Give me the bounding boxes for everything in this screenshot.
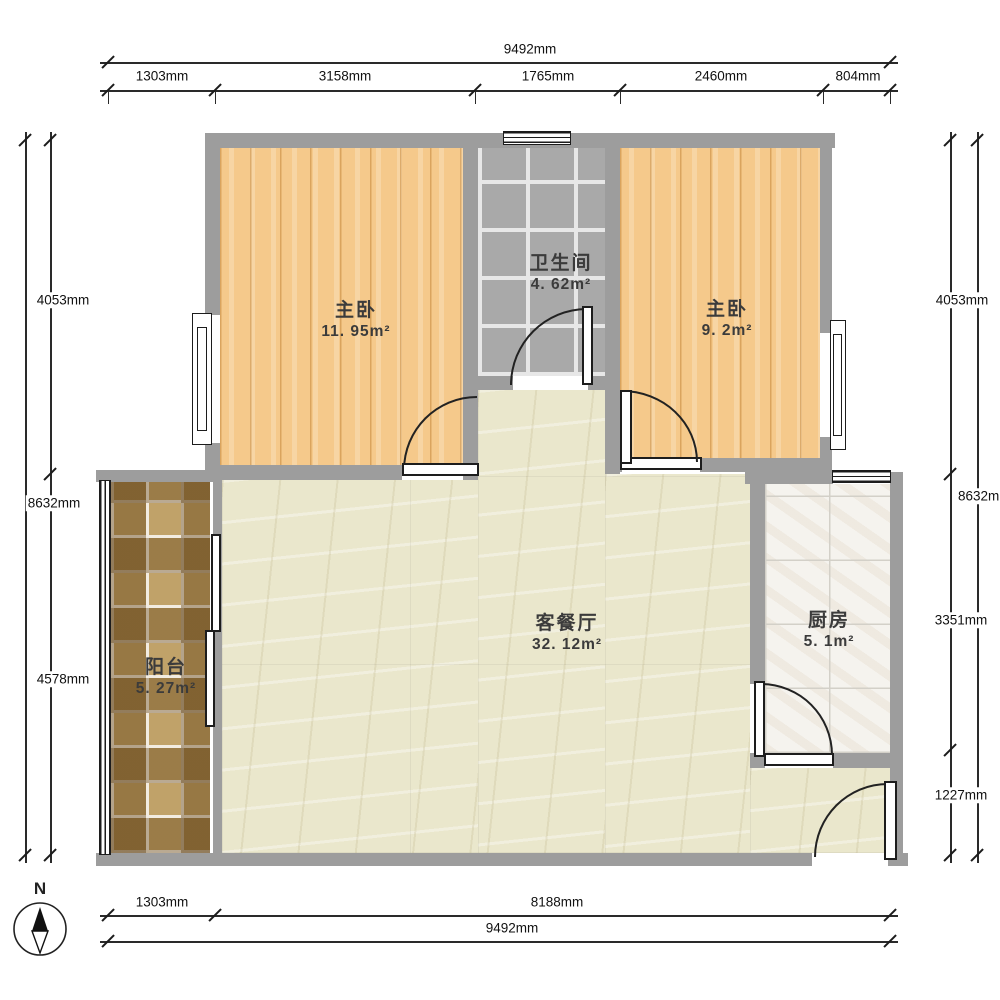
- balcony-window-icon: [99, 480, 111, 855]
- wall-bottom: [96, 853, 812, 866]
- bathroom-door-leaf: [582, 306, 593, 385]
- floor-plan: 9492mm 1303mm 3158mm 1765mm 2460mm 804mm…: [0, 0, 1000, 1000]
- room-name: 阳台: [136, 652, 196, 679]
- dim-label: 4053mm: [934, 292, 991, 308]
- room-name: 主卧: [702, 294, 753, 321]
- floor-living-right: [605, 474, 750, 853]
- dim-label-right-total: 8632mm: [956, 488, 1000, 504]
- dim-label: 3158mm: [317, 68, 374, 84]
- room-label-bathroom: 卫生间 4. 62m²: [529, 248, 592, 294]
- dim-label-bottom-total: 9492mm: [484, 920, 541, 936]
- dim-label: 4578mm: [35, 671, 92, 687]
- wall-bedroom-right-upper: [820, 148, 832, 333]
- compass-icon: [10, 899, 70, 959]
- dim-label: 1227mm: [933, 787, 990, 803]
- room-name: 主卧: [321, 295, 390, 322]
- dim-stub: [620, 91, 621, 104]
- bedroom-left-door-leaf: [402, 463, 479, 476]
- wall-kitchen-left: [750, 484, 765, 684]
- dim-label: 8188mm: [529, 894, 586, 910]
- room-label-kitchen: 厨房 5. 1m²: [804, 605, 855, 651]
- room-area: 5. 1m²: [804, 633, 855, 651]
- wall-kitchen-top: [745, 472, 833, 484]
- wall-bath-bottom-left: [478, 376, 513, 390]
- room-area: 9. 2m²: [702, 322, 753, 340]
- dim-stub: [215, 91, 216, 104]
- wall-bedroom-left-upper: [205, 148, 220, 315]
- balcony-sliding-door-panel: [211, 534, 221, 632]
- room-label-bedroom-right: 主卧 9. 2m²: [702, 294, 753, 340]
- dim-label: 2460mm: [693, 68, 750, 84]
- kitchen-door-leaf: [754, 681, 765, 757]
- room-name: 卫生间: [529, 248, 592, 275]
- bedroom-right-door-leaf: [620, 390, 632, 464]
- room-area: 4. 62m²: [529, 276, 592, 294]
- room-area: 11. 95m²: [321, 323, 390, 341]
- dim-label: 1303mm: [134, 68, 191, 84]
- dim-label: 804mm: [833, 68, 882, 84]
- wall-bedroom-left-bottom: [205, 465, 402, 480]
- dim-stub: [823, 91, 824, 104]
- bathroom-window-icon: [503, 131, 571, 145]
- dim-line-bottom-total: [100, 941, 898, 943]
- dim-label-top-total: 9492mm: [502, 41, 559, 57]
- bedroom-left-window-inner: [197, 327, 207, 431]
- entrance-door-leaf: [884, 781, 897, 860]
- compass-north-label: N: [8, 880, 72, 897]
- room-label-balcony: 阳台 5. 27m²: [136, 652, 196, 698]
- dim-stub: [108, 91, 109, 104]
- kitchen-window-icon: [832, 470, 891, 483]
- room-label-bedroom-left: 主卧 11. 95m²: [321, 295, 390, 341]
- dim-stub: [890, 91, 891, 104]
- dim-line-right-segments: [950, 132, 952, 863]
- balcony-sliding-door-panel: [205, 630, 215, 727]
- compass: N: [8, 880, 72, 960]
- dim-stub: [475, 91, 476, 104]
- floor-living: [222, 480, 478, 853]
- dim-line-bottom-segments: [100, 915, 898, 917]
- dim-label: 4053mm: [35, 292, 92, 308]
- dim-label: 1765mm: [520, 68, 577, 84]
- room-name: 厨房: [804, 605, 855, 632]
- wall-bath-right: [605, 148, 620, 474]
- dim-line-top-total: [100, 62, 898, 64]
- dim-label: 3351mm: [933, 612, 990, 628]
- wall-bedroom-right-bottom: [700, 458, 832, 472]
- wall-balcony-top: [96, 470, 222, 482]
- bedroom-right-window-inner: [833, 334, 842, 436]
- room-area: 32. 12m²: [532, 636, 602, 654]
- room-name: 客餐厅: [532, 608, 602, 635]
- dim-line-top-segments: [100, 90, 898, 92]
- wall-kitchen-bottom: [833, 753, 903, 768]
- room-label-living: 客餐厅 32. 12m²: [532, 608, 602, 654]
- dim-label: 1303mm: [134, 894, 191, 910]
- room-area: 5. 27m²: [136, 680, 196, 698]
- dim-label-left-total: 8632mm: [26, 495, 83, 511]
